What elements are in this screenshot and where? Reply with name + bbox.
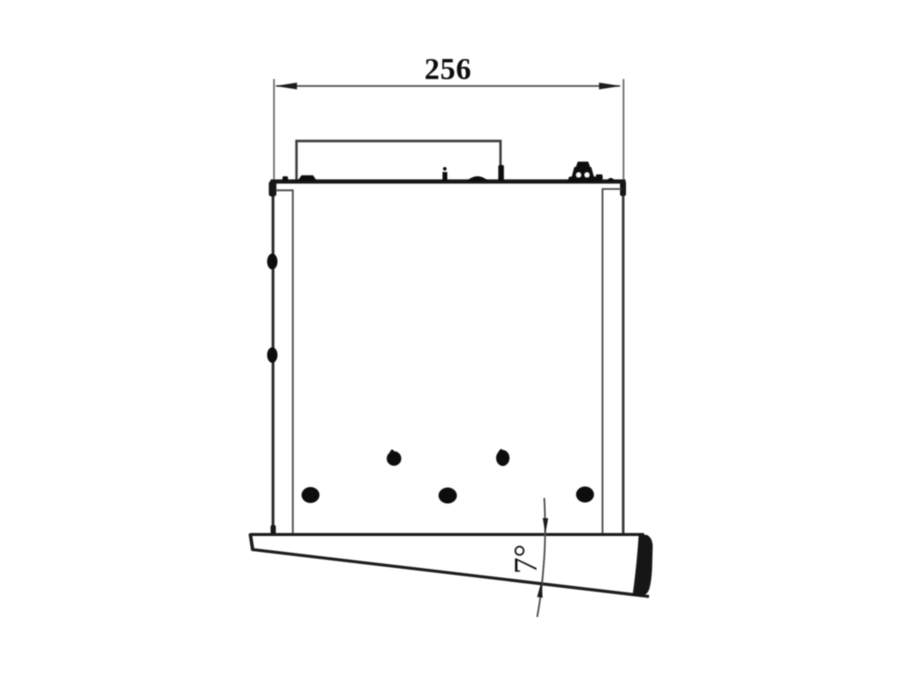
svg-text:7°: 7°	[509, 544, 545, 574]
svg-text:256: 256	[424, 52, 471, 86]
